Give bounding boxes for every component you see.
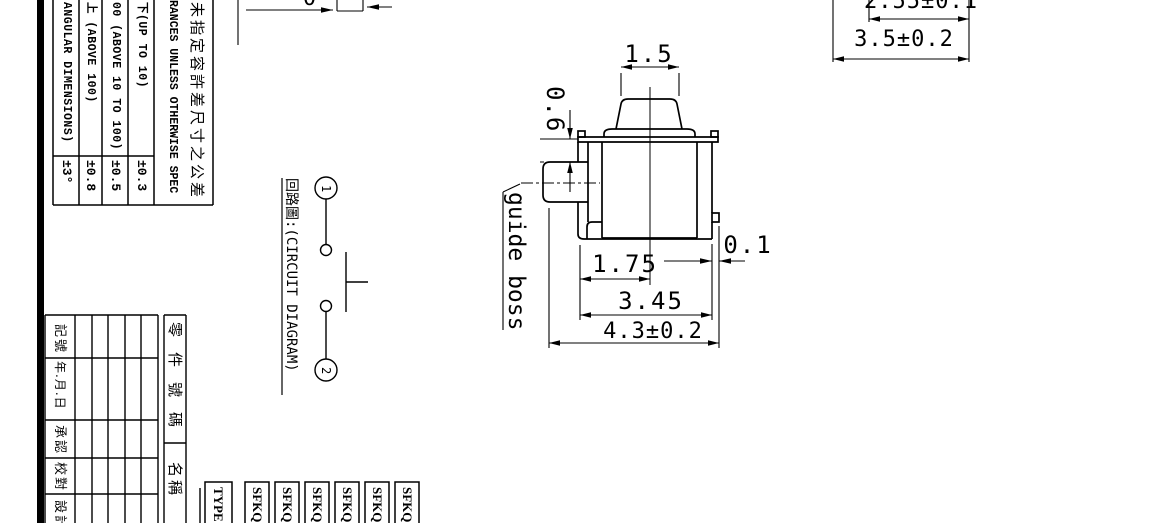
tolerance-row-label: 下(UP TO 10) [136,2,148,88]
tolerance-value: ±0.3 [135,160,148,191]
plunger-outline [616,99,682,129]
dim-boss-height: 0.6 [543,86,567,132]
model-number: SFKQ [311,487,324,522]
model-number: SFKQ [401,487,414,522]
foot-inner-corner [587,222,602,239]
dim-half-width: 1.75 [592,252,658,276]
drawing-sheet: 下(UP TO 10) 00 (ABOVE 10 TO 100) 上 (ABOV… [0,0,1150,523]
contact-circle-top [321,245,332,256]
dim-body-width: 3.45 [618,289,684,313]
dim-inner-width: 2.55±0.1 [864,0,978,13]
part-number-label: 零件號碼 [167,322,182,442]
actuator-symbol [346,252,368,312]
model-number: SFKQ [281,487,294,522]
tolerance-row-label: 上 (ABOVE 100) [85,2,97,103]
guide-boss-label: guide boss [504,192,527,330]
name-label: 名稱 [167,462,182,498]
model-number: SFKQ [341,487,354,522]
top-plate [578,137,718,142]
guide-boss-outline [543,162,588,202]
revision-row-label: 承認 [53,425,66,455]
terminal-1-number: 1 [320,185,332,192]
revision-row-label: 校對 [53,462,66,492]
revision-row-label: 年.月.日 [54,361,66,410]
model-number: SFKQ [251,487,264,522]
dim-top-width: 1.5 [624,42,673,66]
sheet-border-bar [37,0,44,523]
revision-row-label: 記號 [53,324,66,354]
type-label: TYPE [212,487,225,522]
revision-row-label: 設計 [53,500,66,523]
plate-tab-left [578,131,585,137]
tolerance-row-label: ANGULAR DIMENSIONS) [61,2,73,143]
tolerance-value: ±0.8 [84,160,97,191]
terminal-2-number: 2 [320,367,332,374]
plate-tab-right [711,131,718,137]
dim-partial: 0 [303,0,317,10]
tolerance-value: ±3° [60,160,73,183]
side-tab [712,213,719,222]
dim-tab: 0.1 [723,233,772,257]
contact-circle-bottom [321,301,332,312]
dim-outer-width: 3.5±0.2 [854,29,954,51]
tolerance-value: ±0.5 [109,160,122,191]
model-number: SFKQ [371,487,384,522]
tolerance-header-en: RANCES UNLESS OTHERWISE SPEC [167,0,179,193]
tolerance-header-cn: 未指定容許差尺寸之公差 [189,2,204,200]
circuit-title: 回路圖:(CIRCUIT DIAGRAM) [284,178,298,372]
dim-overall-width: 4.3±0.2 [603,321,703,343]
tolerance-row-label: 00 (ABOVE 10 TO 100) [110,2,122,150]
